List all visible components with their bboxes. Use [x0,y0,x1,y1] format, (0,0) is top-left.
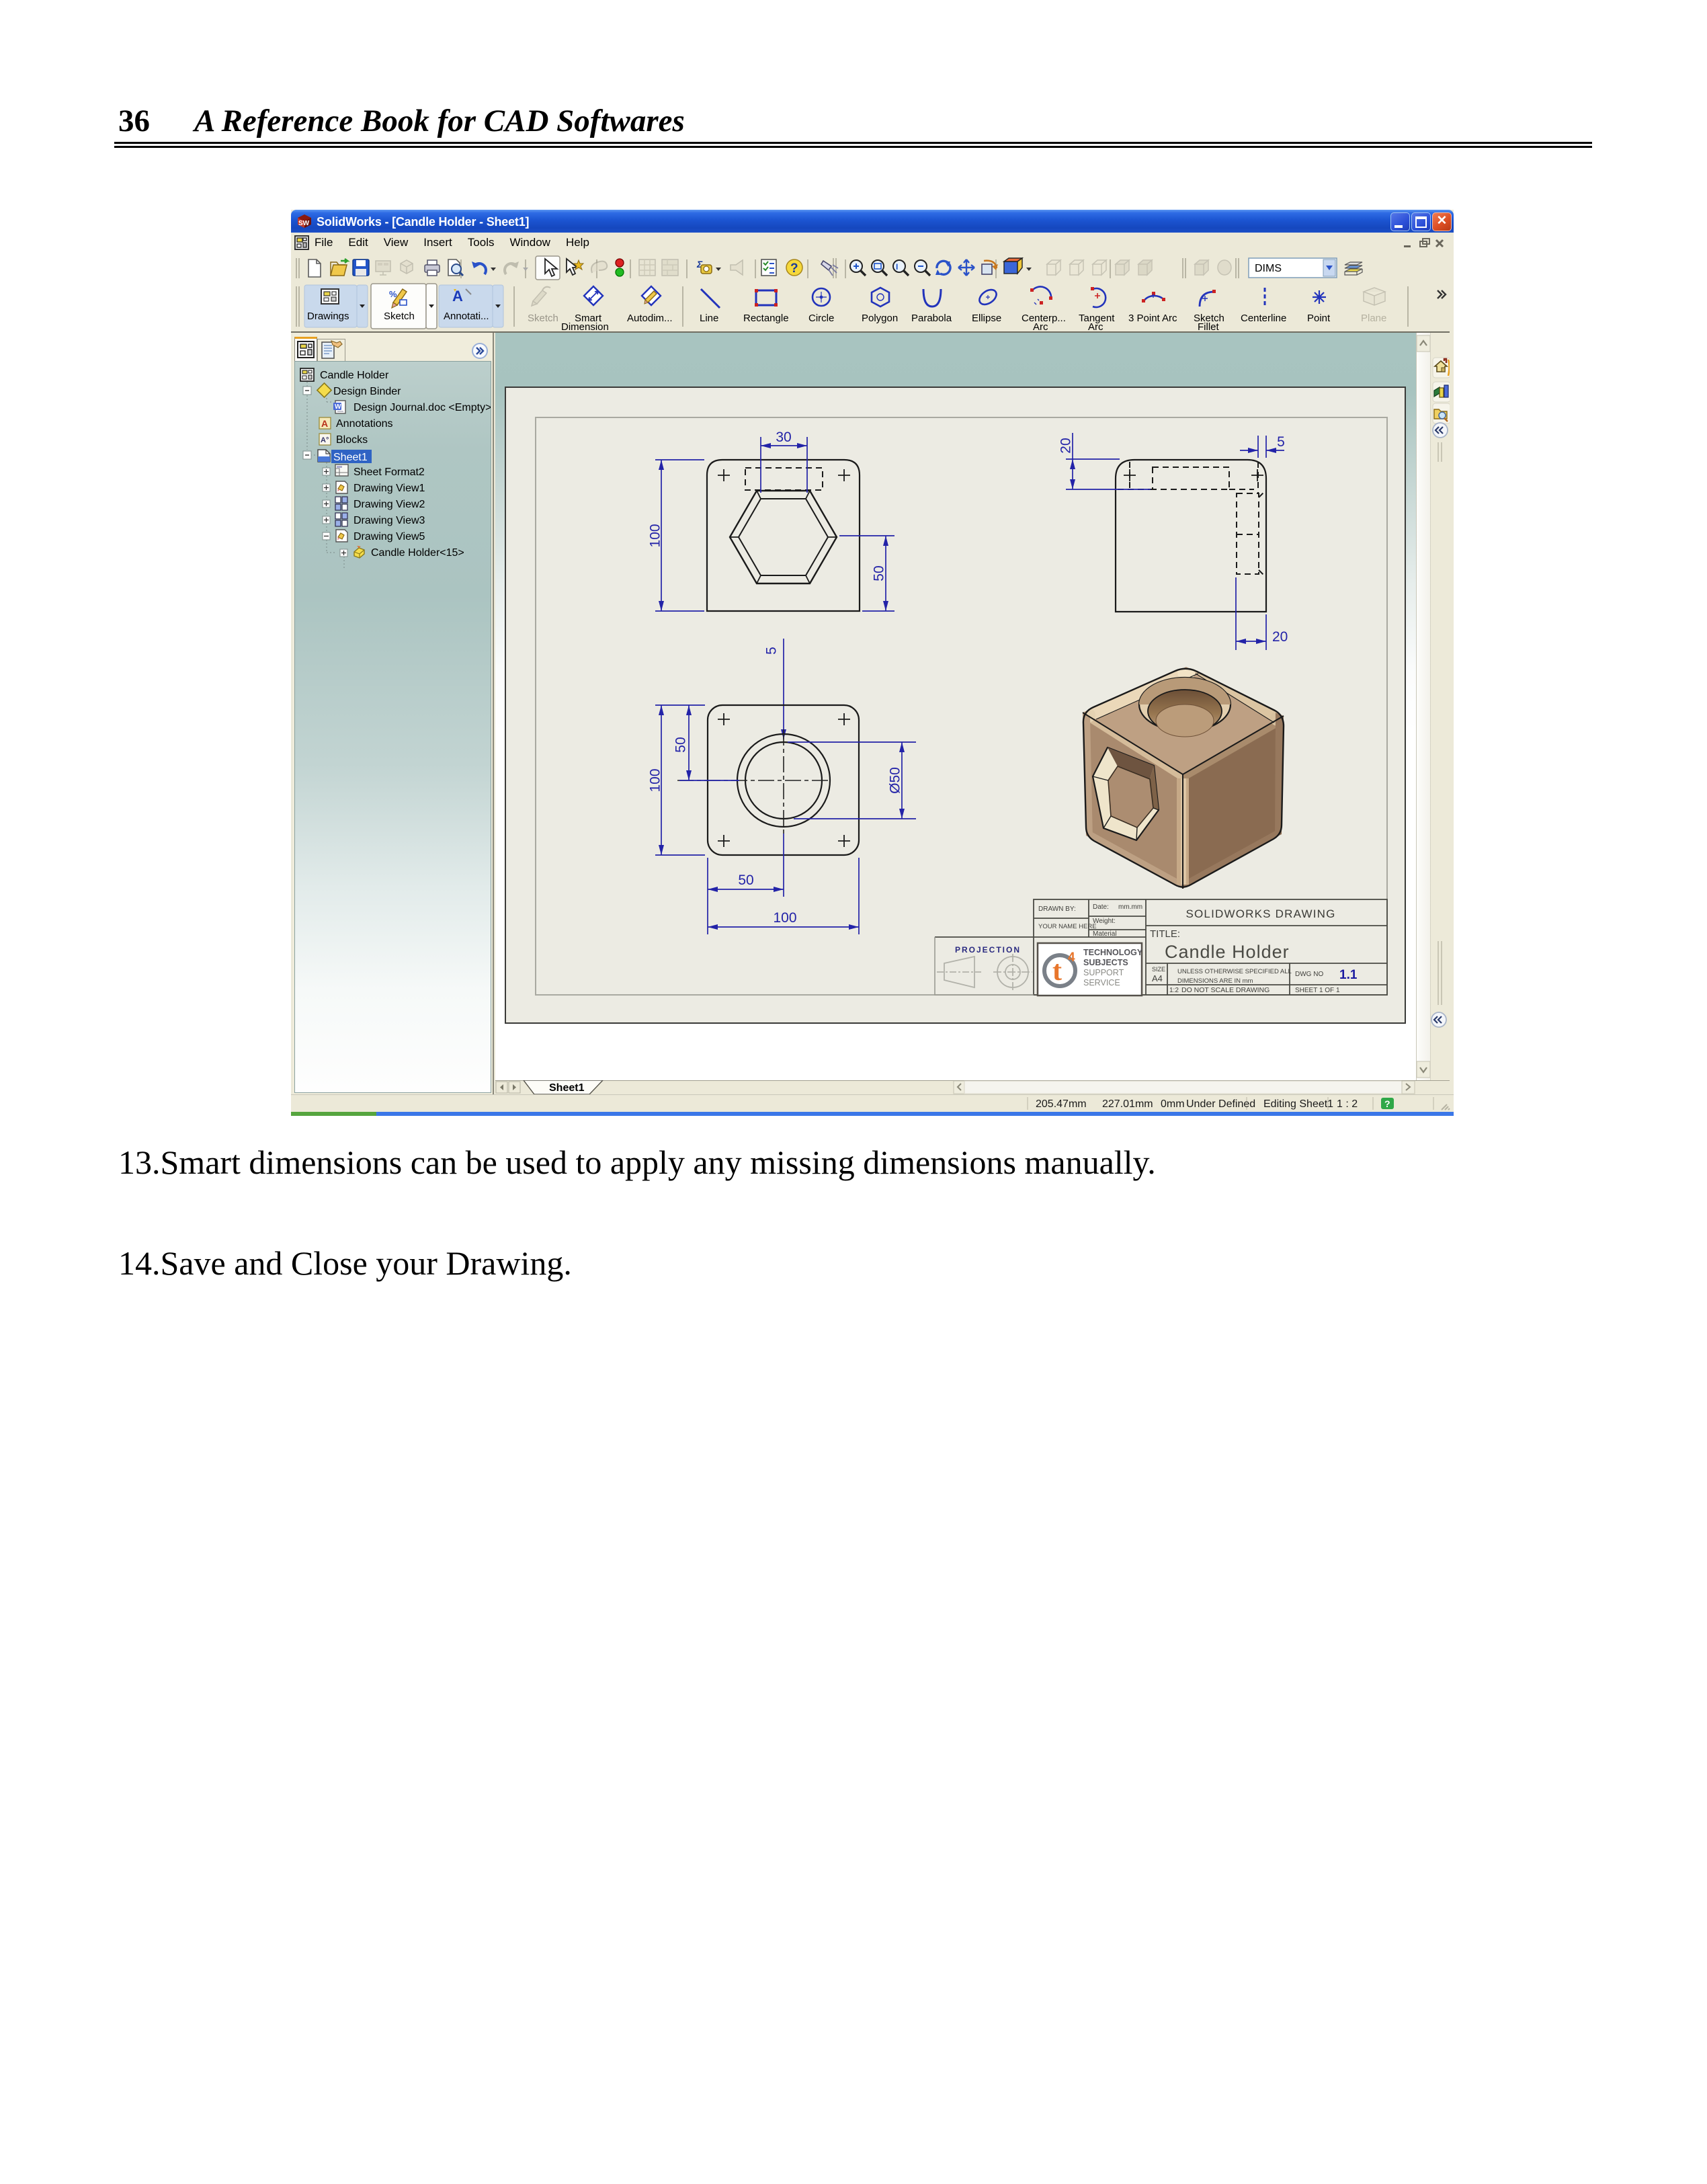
svg-text:Sketch: Sketch [384,311,415,322]
svg-text:Design Journal.doc <Empty>: Design Journal.doc <Empty> [353,402,491,413]
svg-text:Under Defined: Under Defined [1186,1098,1255,1110]
svg-text:mm.mm: mm.mm [1118,903,1142,911]
svg-text:Plane: Plane [1361,313,1386,324]
svg-text:SHEET 1 OF 1: SHEET 1 OF 1 [1295,987,1340,994]
svg-text:Polygon: Polygon [862,313,898,324]
svg-text:Blocks: Blocks [336,434,368,446]
svg-text:Drawing View5: Drawing View5 [353,531,425,542]
svg-text:TITLE:: TITLE: [1150,928,1180,940]
svg-text:t: t [1052,956,1062,987]
svg-text:SW: SW [298,220,310,227]
svg-text:DWG NO: DWG NO [1295,971,1323,978]
svg-text:TECHNOLOGY: TECHNOLOGY [1083,948,1143,957]
svg-text:SOLIDWORKS DRAWING: SOLIDWORKS DRAWING [1185,907,1335,920]
svg-text:%: % [389,289,397,299]
svg-text:A: A [321,418,328,429]
svg-text:50: 50 [738,873,753,888]
svg-text:50: 50 [872,565,887,581]
svg-text:50: 50 [673,737,689,752]
svg-text:UNLESS OTHERWISE SPECIFIED ALL: UNLESS OTHERWISE SPECIFIED ALL [1177,968,1292,975]
svg-text:0mm: 0mm [1161,1098,1185,1110]
svg-text:DIMENSIONS ARE IN mm: DIMENSIONS ARE IN mm [1177,977,1253,985]
svg-text:Drawing View3: Drawing View3 [353,515,425,526]
svg-text:Sketch: Sketch [528,313,558,324]
svg-text:Date:: Date: [1093,903,1109,911]
svg-text:Candle Holder<15>: Candle Holder<15> [371,547,464,559]
svg-text:Drawing View2: Drawing View2 [353,499,425,510]
svg-text:1.1: 1.1 [1339,968,1358,982]
svg-text:SERVICE: SERVICE [1083,978,1120,987]
svg-text:227.01mm: 227.01mm [1102,1098,1153,1110]
svg-text:Drawings: Drawings [307,311,349,322]
svg-text:Dimension: Dimension [561,321,609,331]
svg-text:5: 5 [1277,434,1285,450]
svg-text:A4: A4 [1152,973,1163,983]
svg-text:Weight:: Weight: [1093,918,1116,925]
svg-text:Ø50: Ø50 [888,767,903,794]
svg-text:100: 100 [648,524,663,547]
svg-text:Point: Point [1307,313,1331,324]
svg-text:30: 30 [776,430,791,445]
svg-text:DRAWN BY:: DRAWN BY: [1038,905,1076,913]
svg-text:?: ? [790,261,798,276]
svg-text:Line: Line [700,313,718,324]
svg-text:DIMS: DIMS [1255,263,1282,274]
svg-text:I: I [896,262,898,272]
svg-text:4: 4 [1068,951,1075,965]
svg-text:DO NOT SCALE DRAWING: DO NOT SCALE DRAWING [1181,986,1269,994]
svg-text:Rectangle: Rectangle [743,313,789,324]
svg-text:100: 100 [773,910,796,926]
svg-text:100: 100 [648,768,663,792]
svg-text:Annotations: Annotations [336,418,393,430]
svg-text:SUBJECTS: SUBJECTS [1083,958,1128,967]
svg-text:1:2: 1:2 [1169,987,1179,994]
svg-text:Design Binder: Design Binder [333,386,401,397]
svg-text:Circle: Circle [808,313,834,324]
svg-text:3 Point Arc: 3 Point Arc [1128,313,1177,324]
svg-text:Arc: Arc [1088,321,1104,331]
svg-text:Centerline: Centerline [1241,313,1286,324]
svg-text:5: 5 [764,647,780,655]
svg-text:Candle Holder: Candle Holder [1165,942,1290,962]
svg-text:Sheet Format2: Sheet Format2 [353,467,425,478]
svg-text:PROJECTION: PROJECTION [955,945,1021,955]
svg-text:Candle Holder: Candle Holder [320,370,389,381]
svg-text:SIZE: SIZE [1152,966,1165,973]
svg-text:Drawing View1: Drawing View1 [353,483,425,494]
svg-text:Annotati...: Annotati... [444,311,489,322]
svg-text:A: A [452,288,463,305]
svg-text:20: 20 [1272,629,1288,645]
svg-text:Sheet1: Sheet1 [549,1082,585,1094]
svg-text:20: 20 [1058,438,1074,453]
svg-text:205.47mm: 205.47mm [1036,1098,1087,1110]
svg-text:Parabola: Parabola [911,313,952,324]
svg-text:Material: Material [1093,930,1117,938]
svg-text:1 : 2: 1 : 2 [1337,1098,1358,1110]
svg-text:Fillet: Fillet [1198,321,1220,331]
svg-text:SUPPORT: SUPPORT [1083,968,1124,977]
svg-text:YOUR NAME HERE: YOUR NAME HERE [1038,923,1097,930]
svg-text:Autodim...: Autodim... [627,313,673,324]
svg-text:Sheet1: Sheet1 [333,452,368,463]
svg-text:Editing Sheet1: Editing Sheet1 [1263,1098,1333,1110]
svg-text:A°: A° [321,436,329,444]
svg-text:?: ? [1384,1098,1390,1109]
svg-text:W: W [335,403,341,411]
svg-text:Arc: Arc [1033,321,1048,331]
svg-text:Ellipse: Ellipse [972,313,1001,324]
